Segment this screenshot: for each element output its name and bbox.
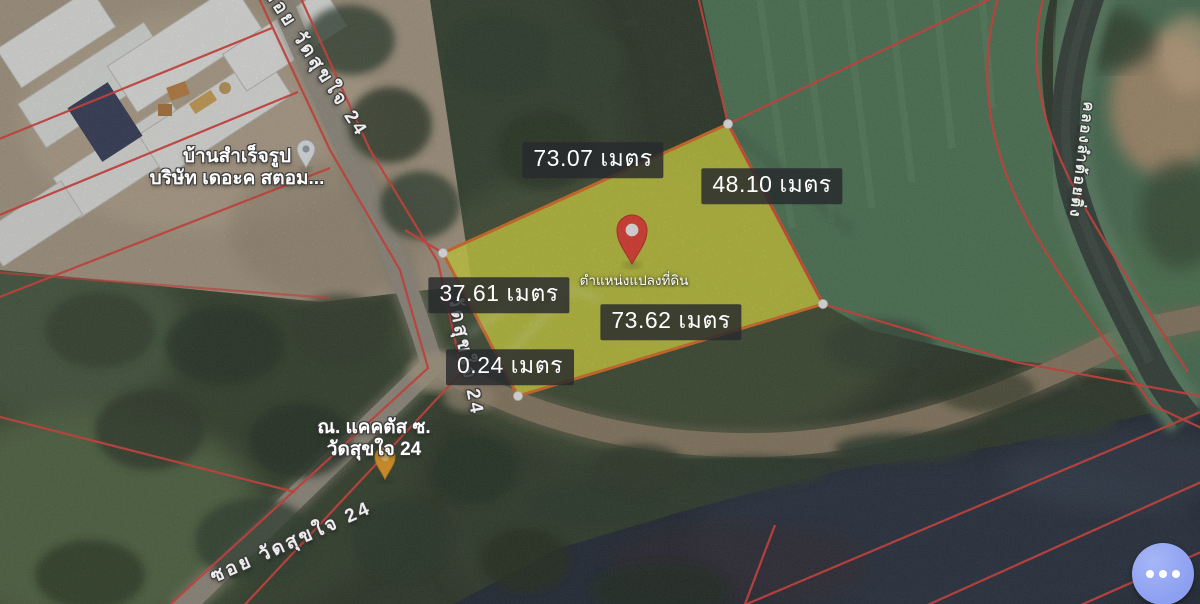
- ellipsis-icon: [1159, 570, 1167, 578]
- measurement-tiny: 0.24 เมตร: [446, 349, 574, 385]
- satellite-map[interactable]: ซอย วัดสุขใจ 24 วัดสุขใจ 24 ซอย วัดสุขใจ…: [0, 0, 1200, 604]
- measurement-bottom: 73.62 เมตร: [600, 304, 741, 340]
- chat-bubble-button[interactable]: [1132, 543, 1194, 604]
- measurement-top: 73.07 เมตร: [522, 142, 663, 178]
- map-terrain: [0, 0, 1200, 604]
- poi-cactus-line2: วัดสุขใจ 24: [317, 439, 430, 461]
- measurement-right: 48.10 เมตร: [701, 168, 842, 204]
- poi-prefab-line1: บ้านสำเร็จรูป: [150, 146, 325, 168]
- poi-label-cactus[interactable]: ณ. แคคตัส ซ. วัดสุขใจ 24: [317, 417, 430, 461]
- poi-label-prefab[interactable]: บ้านสำเร็จรูป บริษัท เดอะค สตอม...: [150, 146, 325, 190]
- poi-prefab-line2: บริษัท เดอะค สตอม...: [150, 168, 325, 190]
- texture-light: [0, 0, 1200, 604]
- plot-pin-caption: ตำแหน่งแปลงที่ดิน: [580, 269, 689, 291]
- ellipsis-icon: [1172, 570, 1180, 578]
- poi-cactus-line1: ณ. แคคตัส ซ.: [317, 417, 430, 439]
- ellipsis-icon: [1146, 570, 1154, 578]
- measurement-left: 37.61 เมตร: [428, 277, 569, 313]
